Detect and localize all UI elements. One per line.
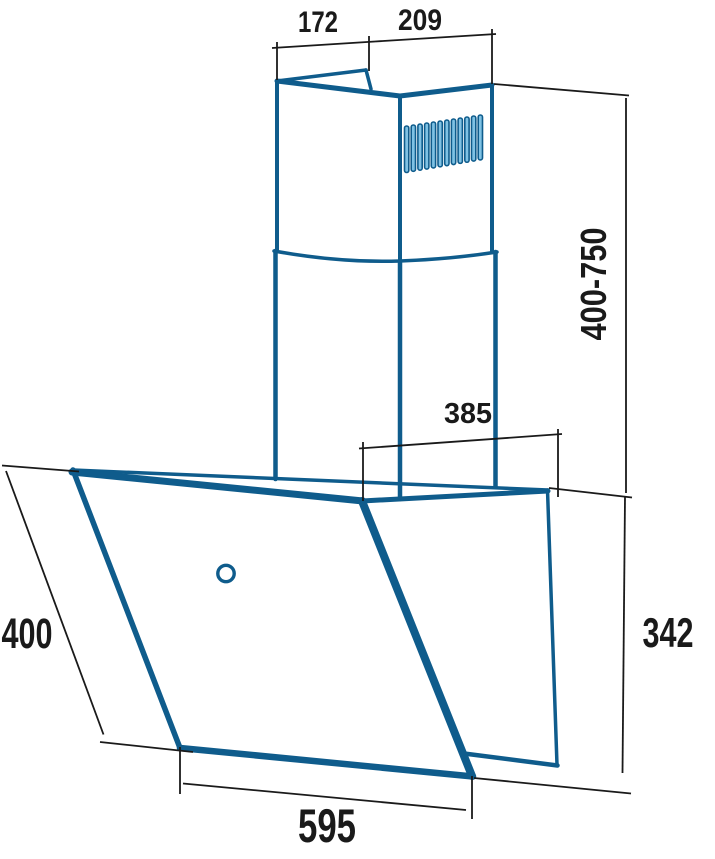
vent-slot (472, 116, 476, 161)
dimension-label-385: 385 (444, 398, 492, 430)
dim-chimney-height-range: 400-750 (494, 84, 629, 493)
hood-side-top-edge (362, 491, 548, 501)
vent-slot (438, 121, 442, 167)
chimney-top-left-edge (277, 81, 400, 96)
dimension-line (272, 42, 375, 49)
dimension-label-400: 400 (2, 610, 53, 658)
dimension-label-209: 209 (398, 4, 442, 37)
dimension-label-342: 342 (643, 609, 694, 656)
vent-slot (405, 126, 409, 173)
chimney-joint-right-edge (400, 252, 497, 261)
chimney-lower-section (274, 251, 497, 499)
vent-slot (478, 115, 482, 160)
vent-grille (405, 115, 483, 173)
chimney-top-rim-corner-edge (366, 70, 371, 89)
chimney-top-rim-back-edge (277, 70, 366, 81)
extension-line (494, 84, 629, 96)
chimney-upper-section (277, 70, 492, 259)
vent-slot (465, 117, 469, 162)
vent-slot (445, 120, 449, 166)
glass-panel-bottom-edge (180, 748, 473, 777)
drawing-canvas: 172 209 400-750 385 342 400 595 (0, 0, 715, 859)
extension-line (549, 488, 632, 498)
hood-body (72, 470, 558, 777)
chimney-joint-left-edge (274, 251, 400, 261)
dim-chimney-left-width: 172 (272, 6, 375, 80)
dimension-label-172: 172 (298, 6, 338, 39)
dim-chimney-right-width: 209 (375, 4, 496, 84)
extension-line (2, 466, 79, 472)
dim-hood-rear-height: 342 (474, 488, 694, 794)
extension-line (474, 778, 631, 794)
vent-slot (411, 125, 415, 171)
hood-side-bottom-edge (464, 754, 558, 766)
vent-slot (451, 119, 455, 165)
glass-panel-right-edge (362, 501, 472, 776)
vent-slot (431, 122, 435, 168)
dimension-line (359, 434, 562, 449)
dimension-line (623, 497, 626, 773)
vent-slot (425, 123, 429, 169)
vent-slot (458, 118, 462, 163)
hood-back-right-edge (548, 490, 558, 765)
dimension-label-400-750: 400-750 (573, 228, 614, 341)
cooker-hood-drawing: 172 209 400-750 385 342 400 595 (0, 0, 715, 859)
glass-panel-left-edge (73, 470, 180, 748)
chimney-top-right-edge (400, 85, 492, 96)
vent-slot (418, 124, 422, 170)
power-button-icon (218, 565, 234, 581)
dimension-label-595: 595 (298, 799, 356, 852)
